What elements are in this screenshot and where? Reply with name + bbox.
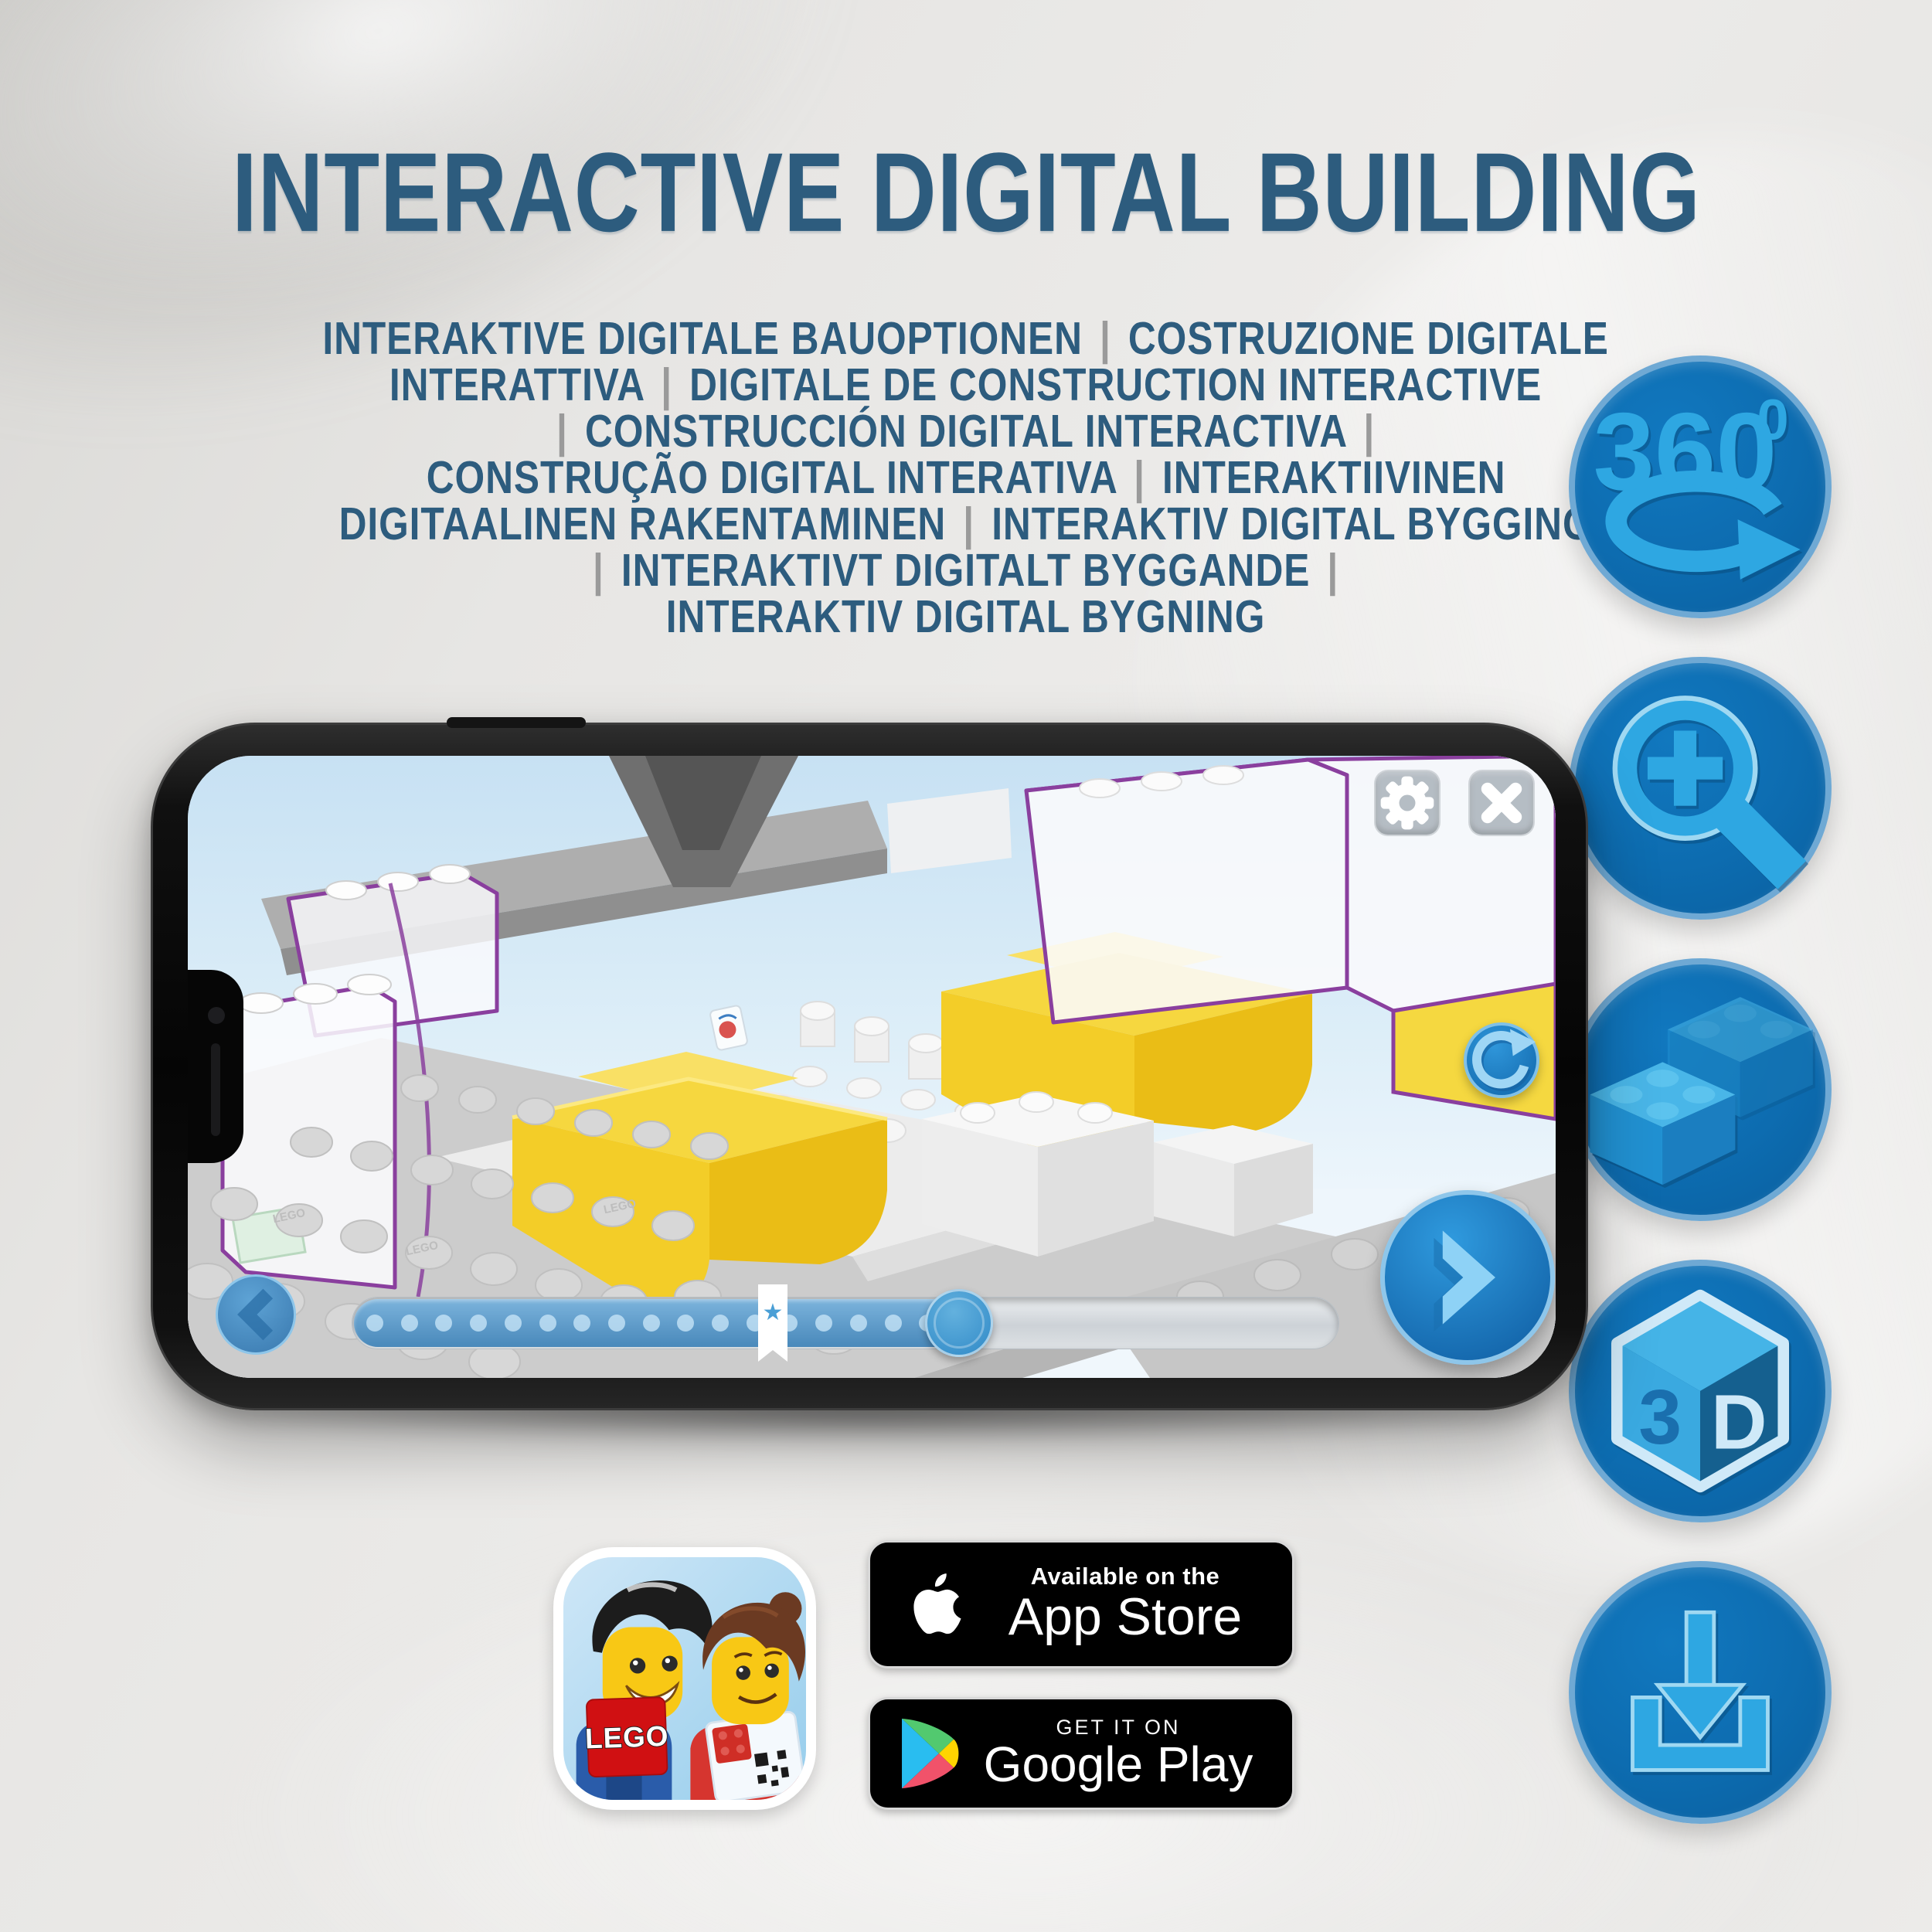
label-360: 360	[1594, 390, 1777, 513]
feature-circle-zoom	[1569, 657, 1832, 920]
rotate-arrow-icon	[1467, 1026, 1536, 1095]
google-play-title: Google Play	[964, 1739, 1272, 1791]
star-icon: ★	[758, 1301, 787, 1325]
app-store-badge[interactable]: Available on the App Store	[868, 1540, 1294, 1668]
bookmark-ribbon[interactable]: ★	[758, 1284, 787, 1362]
lego-app-artwork: LEGO	[563, 1557, 806, 1800]
close-icon	[1470, 771, 1533, 835]
cube-3d-icon: 3 D	[1575, 1266, 1825, 1516]
lego-build-scene: LEGO LEGO LEGO	[188, 756, 1556, 1378]
page-title-text: INTERACTIVE DIGITAL BUILDING	[232, 128, 1701, 257]
google-play-icon	[893, 1714, 964, 1793]
speaker-slit	[211, 1043, 220, 1136]
brick-build-icon	[1575, 964, 1825, 1215]
gear-icon	[1376, 771, 1439, 835]
app-store-tagline: Available on the	[978, 1564, 1272, 1590]
phone-side-button	[447, 717, 586, 728]
feature-circle-brick	[1569, 958, 1832, 1221]
poster-canvas: INTERACTIVE DIGITAL BUILDING INTERAKTIVE…	[0, 0, 1932, 1932]
label-360-degree: 0	[1757, 387, 1788, 451]
label-d: D	[1711, 1379, 1767, 1466]
previous-step-button[interactable]	[216, 1274, 296, 1355]
feature-circle-3d: 3 D	[1569, 1260, 1832, 1522]
chevron-left-icon	[218, 1277, 294, 1352]
label-3: 3	[1638, 1374, 1682, 1461]
subtitle-line: INTERAKTIVE DIGITALE BAUOPTIONEN | COSTR…	[0, 315, 1932, 362]
rotate-view-button[interactable]	[1464, 1022, 1539, 1098]
page-title: INTERACTIVE DIGITAL BUILDING	[0, 130, 1932, 255]
progress-dots	[352, 1297, 1339, 1349]
next-step-button[interactable]	[1380, 1190, 1555, 1365]
build-progress-bar[interactable]: ★	[352, 1297, 1339, 1349]
rotate-360-icon: 360 0	[1575, 362, 1825, 612]
google-play-badge[interactable]: GET IT ON Google Play	[868, 1697, 1294, 1810]
progress-thumb[interactable]	[925, 1289, 993, 1357]
zoom-in-icon	[1575, 663, 1825, 913]
phone-mockup: LEGO LEGO LEGO	[151, 723, 1588, 1410]
apple-icon	[893, 1558, 978, 1651]
close-button[interactable]	[1468, 770, 1535, 836]
feature-circle-360: 360 0	[1569, 355, 1832, 618]
google-play-tagline: GET IT ON	[964, 1716, 1272, 1738]
chevron-right-icon	[1385, 1195, 1550, 1360]
lego-app-icon[interactable]: LEGO	[553, 1547, 816, 1810]
feature-circle-download	[1569, 1561, 1832, 1824]
download-icon	[1575, 1567, 1825, 1818]
app-store-title: App Store	[978, 1590, 1272, 1645]
phone-notch	[188, 970, 243, 1163]
settings-button[interactable]	[1374, 770, 1440, 836]
camera-icon	[208, 1007, 225, 1024]
phone-screen: LEGO LEGO LEGO	[188, 756, 1556, 1378]
lego-logo-text: LEGO	[584, 1720, 669, 1755]
